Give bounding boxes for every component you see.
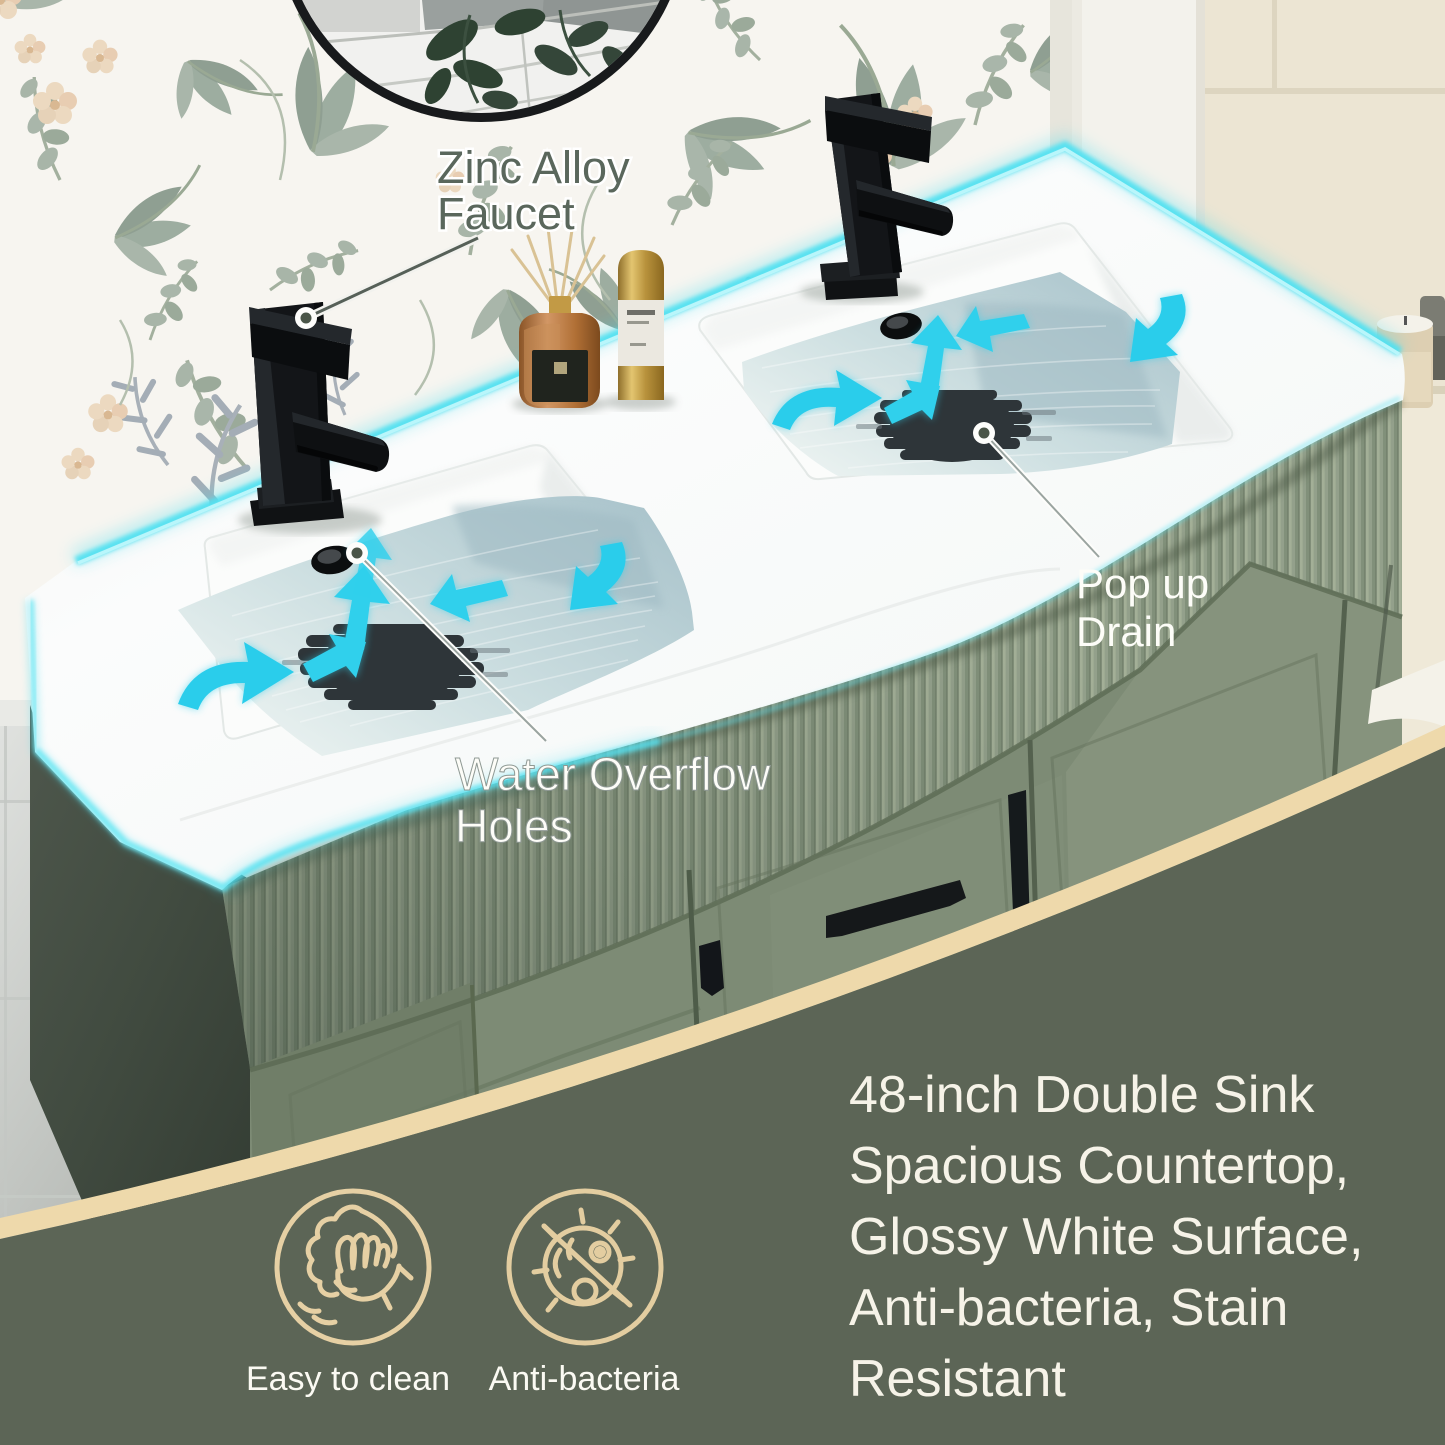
svg-text:Faucet: Faucet xyxy=(437,188,575,239)
svg-text:Water Overflow: Water Overflow xyxy=(455,748,771,800)
svg-text:Zinc Alloy: Zinc Alloy xyxy=(437,142,630,193)
svg-text:Spacious Countertop,: Spacious Countertop, xyxy=(849,1137,1349,1195)
svg-text:Resistant: Resistant xyxy=(849,1350,1066,1408)
svg-text:Holes: Holes xyxy=(455,800,573,852)
svg-text:Drain: Drain xyxy=(1076,608,1176,655)
svg-text:Anti-bacteria: Anti-bacteria xyxy=(489,1360,680,1398)
svg-text:Easy to clean: Easy to clean xyxy=(246,1360,450,1398)
svg-text:Glossy White Surface,: Glossy White Surface, xyxy=(849,1208,1363,1266)
svg-text:48-inch Double Sink: 48-inch Double Sink xyxy=(849,1066,1315,1124)
svg-text:Pop up: Pop up xyxy=(1076,560,1209,607)
svg-text:Anti-bacteria, Stain: Anti-bacteria, Stain xyxy=(849,1279,1288,1337)
